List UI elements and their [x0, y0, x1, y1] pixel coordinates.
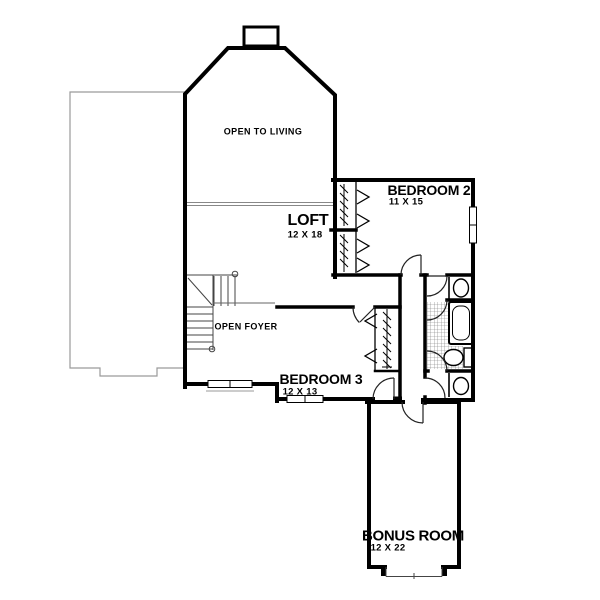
label-bedroom2-dims: 11 X 15 [389, 197, 423, 207]
staircase [185, 271, 275, 352]
door-bonus-room [402, 402, 423, 423]
roof-outline [70, 92, 185, 376]
label-open-foyer: OPEN FOYER [214, 323, 277, 332]
door-bedroom3-top [353, 307, 375, 323]
label-open-to-living: OPEN TO LIVING [224, 128, 302, 137]
floor-plan: OPEN TO LIVING LOFT 12 X 18 BEDROOM 2 11… [0, 0, 600, 600]
label-loft: LOFT [288, 213, 329, 229]
chimney [244, 27, 278, 46]
closet-bedroom3 [365, 309, 392, 369]
window-foyer [206, 381, 254, 392]
bay-window-bonus [381, 567, 447, 579]
toilet [444, 348, 474, 367]
label-bedroom3: BEDROOM 3 [280, 372, 363, 386]
closet-bedroom2 [340, 184, 369, 272]
floor-plan-drawing [0, 0, 600, 600]
label-bonus-room: BONUS ROOM [362, 529, 464, 544]
door-bedroom3-bottom [373, 378, 394, 399]
label-bedroom3-dims: 12 X 13 [283, 387, 318, 397]
window-bedroom2 [470, 207, 477, 243]
railing [187, 203, 333, 206]
label-loft-dims: 12 X 18 [288, 230, 323, 240]
sink-bottom [449, 373, 469, 397]
label-bonus-room-dims: 12 X 22 [371, 543, 406, 553]
windows [206, 207, 477, 579]
bathtub [449, 302, 473, 344]
door-vanity-bottom [425, 378, 445, 398]
label-bedroom2: BEDROOM 2 [388, 183, 471, 197]
door-vanity-top [427, 276, 447, 296]
sink-top [449, 277, 469, 299]
door-bedroom2 [401, 255, 421, 275]
